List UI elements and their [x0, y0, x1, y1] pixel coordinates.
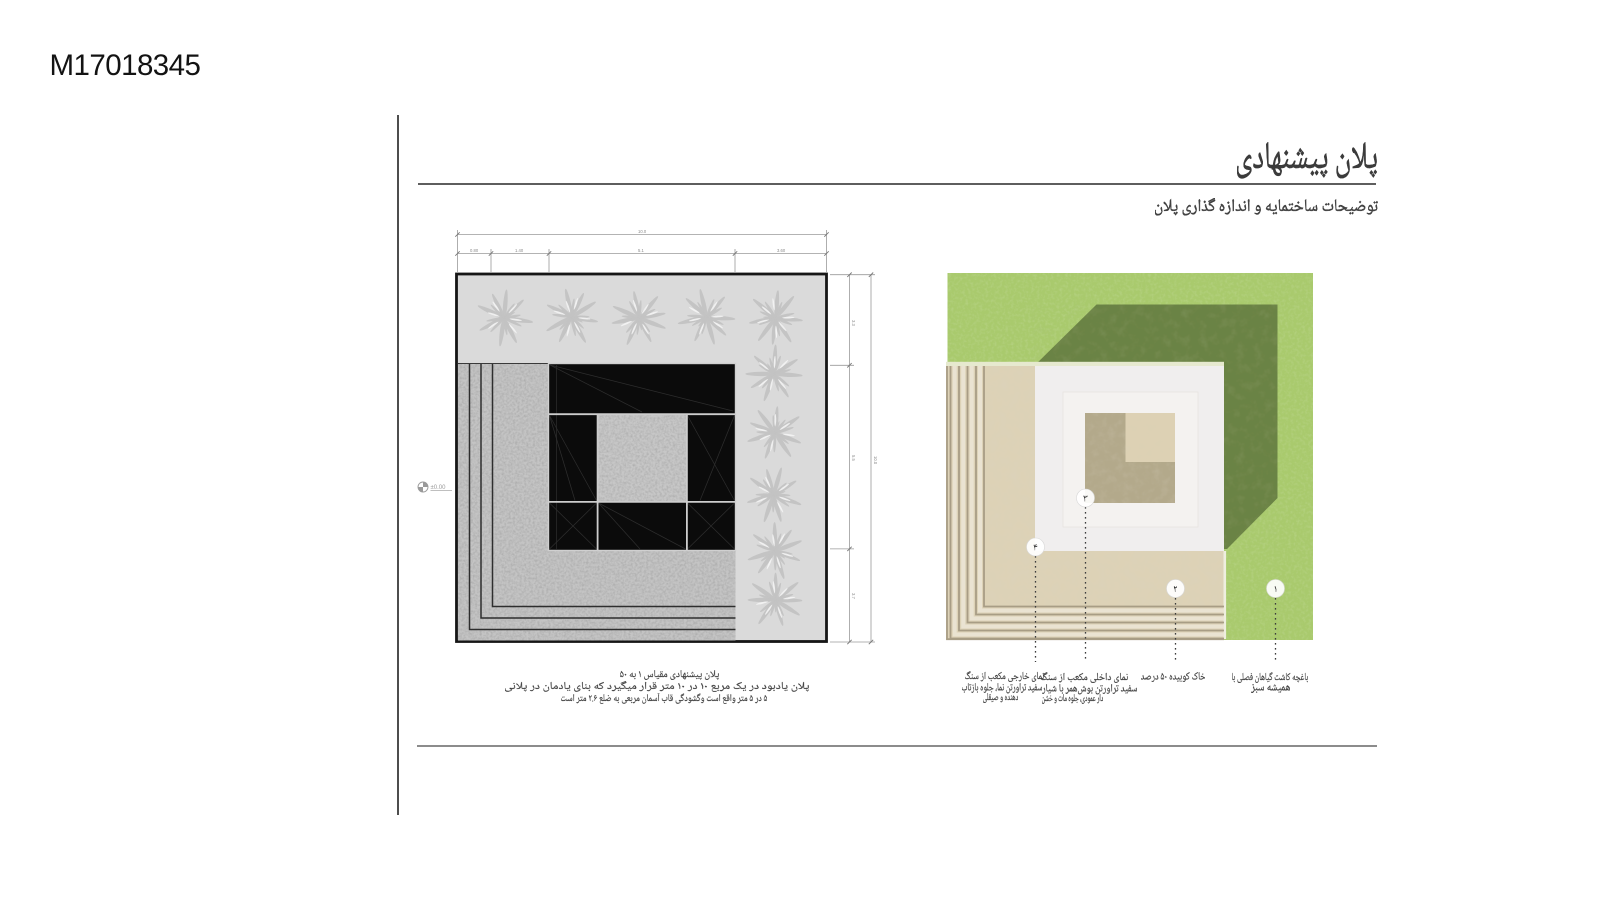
- svg-text:10.0: 10.0: [638, 229, 647, 234]
- svg-text:5.1: 5.1: [638, 248, 644, 253]
- svg-text:10.0: 10.0: [873, 456, 878, 465]
- svg-text:3.60: 3.60: [777, 248, 786, 253]
- svg-text:0.80: 0.80: [470, 248, 479, 253]
- svg-text:3.3: 3.3: [851, 320, 856, 326]
- svg-text:1.40: 1.40: [515, 248, 524, 253]
- svg-text:5.5: 5.5: [851, 455, 856, 461]
- svg-text:3.7: 3.7: [851, 593, 856, 599]
